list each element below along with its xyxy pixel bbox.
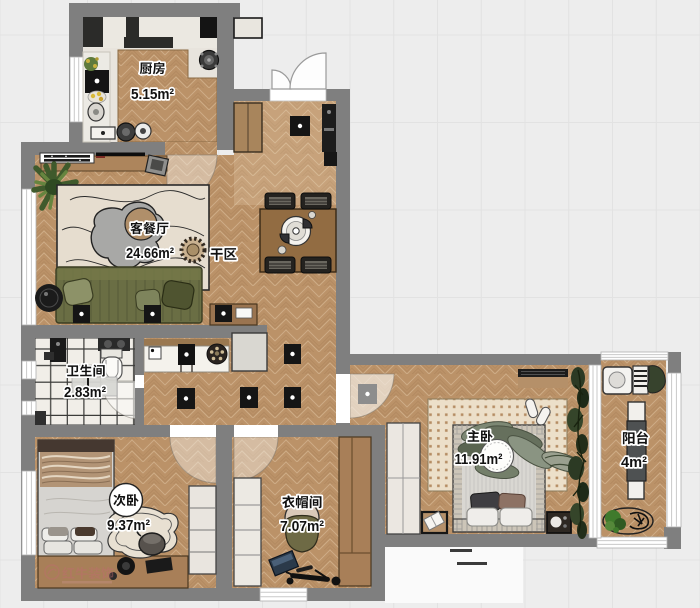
svg-text:11.91m²: 11.91m² xyxy=(455,451,503,468)
svg-text:5.15m²: 5.15m² xyxy=(131,86,174,103)
svg-text:4m²: 4m² xyxy=(621,454,647,471)
svg-text:2.83m²: 2.83m² xyxy=(64,384,106,401)
svg-text:9.37m²: 9.37m² xyxy=(107,517,150,534)
svg-text:7.07m²: 7.07m² xyxy=(280,518,324,535)
svg-text:24.66m²: 24.66m² xyxy=(126,245,174,262)
